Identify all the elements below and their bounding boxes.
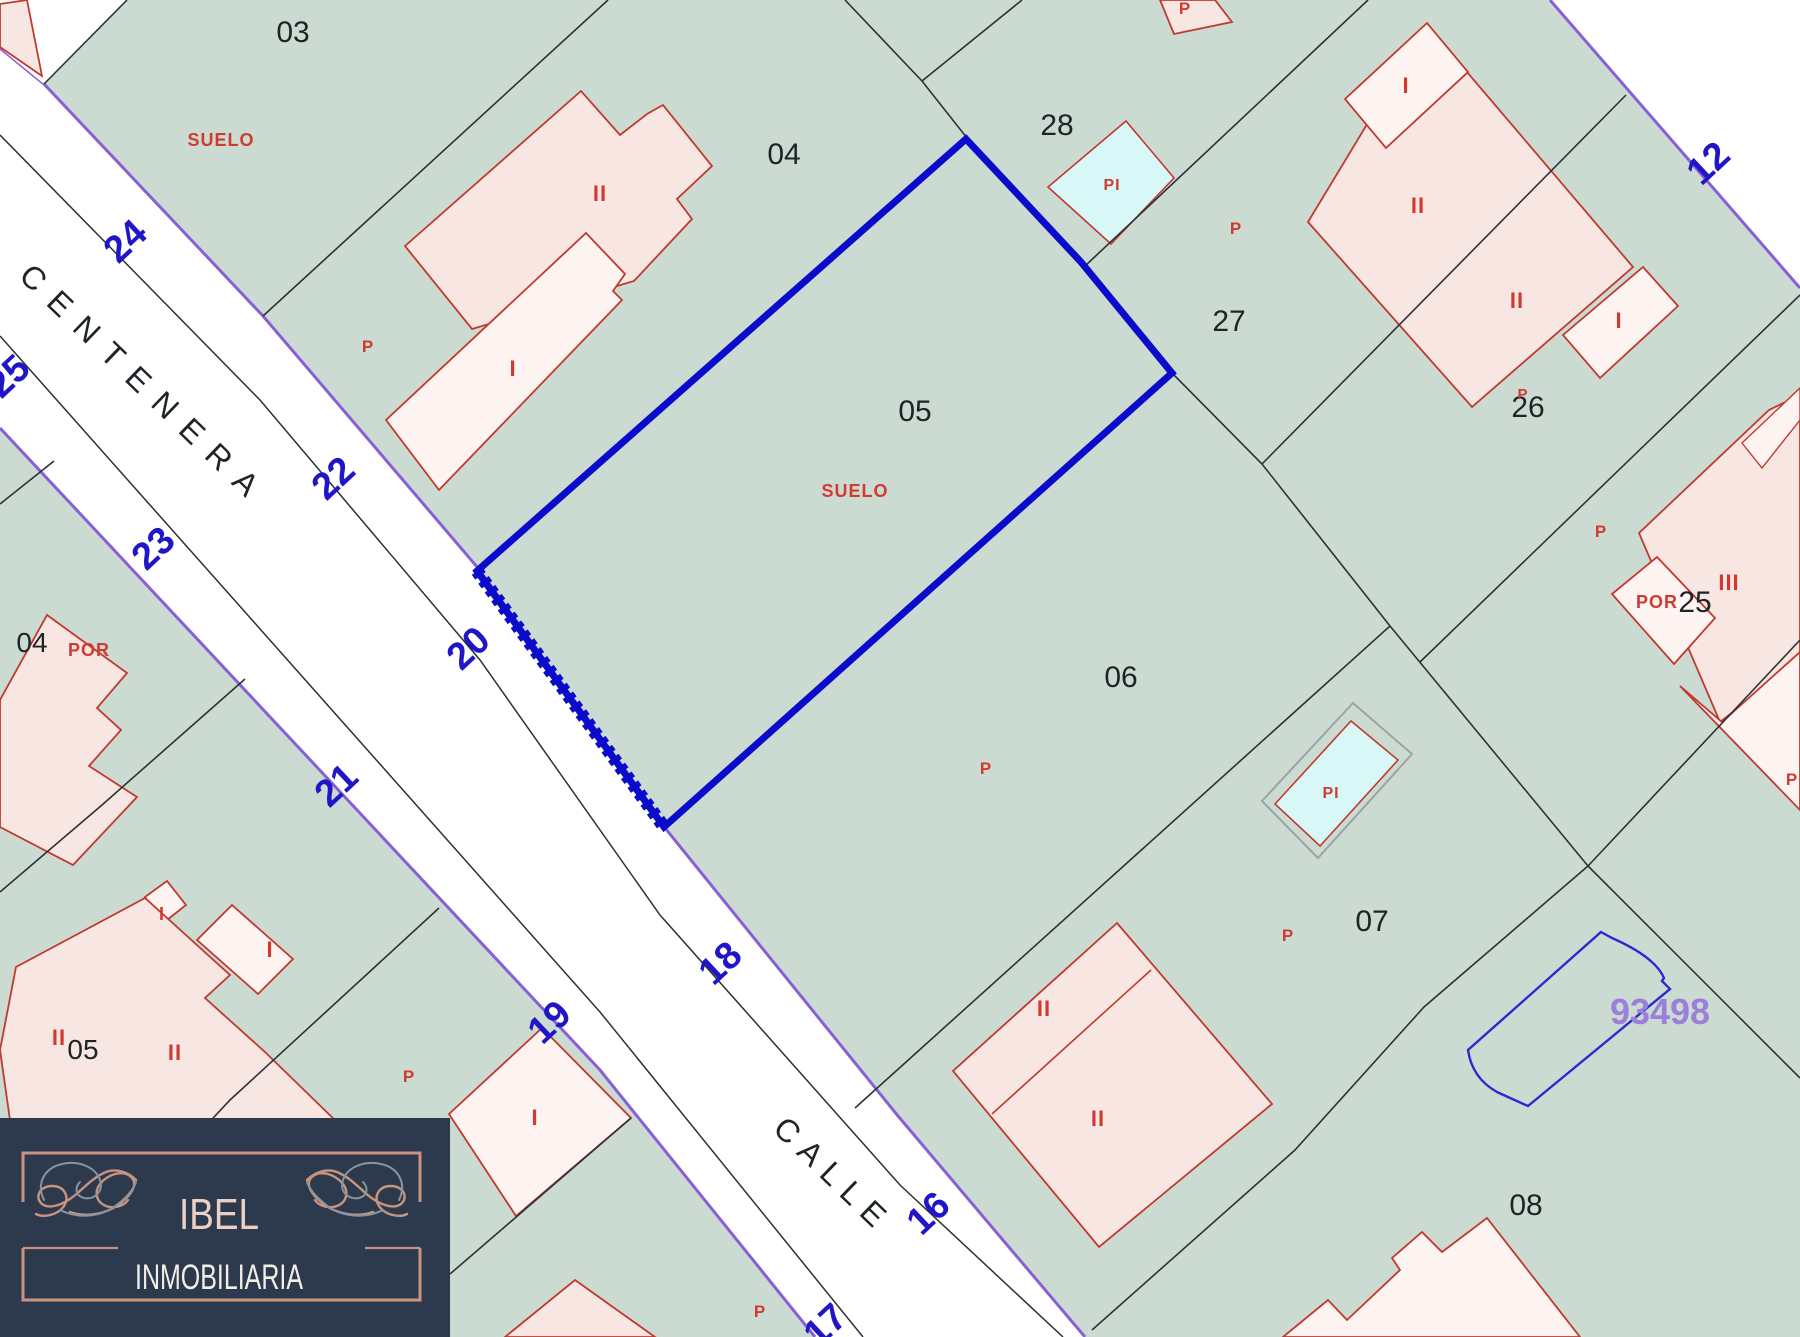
svg-text:P: P — [403, 1067, 415, 1086]
svg-text:IBEL: IBEL — [179, 1190, 259, 1239]
svg-text:I: I — [1402, 73, 1409, 98]
svg-text:04: 04 — [767, 138, 800, 171]
svg-text:93498: 93498 — [1610, 991, 1710, 1032]
svg-text:PI: PI — [1103, 177, 1120, 194]
svg-text:05: 05 — [67, 1034, 98, 1065]
svg-text:SUELO: SUELO — [821, 481, 888, 501]
svg-text:II: II — [1510, 288, 1524, 313]
svg-text:III: III — [1718, 570, 1739, 595]
svg-text:08: 08 — [1509, 1189, 1542, 1222]
svg-text:I: I — [531, 1105, 538, 1130]
svg-text:SUELO: SUELO — [187, 130, 254, 150]
svg-text:P: P — [980, 759, 992, 778]
svg-text:II: II — [168, 1040, 182, 1065]
svg-text:INMOBILIARIA: INMOBILIARIA — [135, 1258, 303, 1297]
svg-text:P: P — [1179, 0, 1191, 18]
svg-text:II: II — [1411, 193, 1425, 218]
svg-text:II: II — [52, 1025, 66, 1050]
svg-text:POR: POR — [1636, 592, 1678, 612]
svg-text:I: I — [509, 356, 516, 381]
svg-text:27: 27 — [1212, 305, 1245, 338]
svg-text:I: I — [1615, 308, 1622, 333]
svg-text:P: P — [1517, 386, 1528, 403]
svg-text:03: 03 — [276, 16, 309, 49]
svg-text:PI: PI — [1322, 785, 1339, 802]
svg-text:P: P — [1282, 926, 1294, 945]
svg-text:07: 07 — [1355, 905, 1388, 938]
svg-text:II: II — [593, 181, 607, 206]
svg-text:II: II — [1037, 996, 1051, 1021]
svg-text:P: P — [1786, 770, 1798, 789]
svg-text:I: I — [266, 937, 273, 962]
svg-text:P: P — [1595, 522, 1607, 541]
svg-text:28: 28 — [1040, 109, 1073, 142]
svg-text:POR: POR — [68, 640, 110, 660]
svg-text:P: P — [362, 337, 374, 356]
svg-text:II: II — [1091, 1106, 1105, 1131]
svg-text:P: P — [754, 1302, 766, 1321]
svg-text:04: 04 — [16, 627, 47, 658]
svg-text:25: 25 — [1678, 586, 1711, 619]
svg-text:P: P — [1230, 219, 1242, 238]
svg-text:05: 05 — [898, 395, 931, 428]
svg-text:06: 06 — [1104, 661, 1137, 694]
svg-text:I: I — [159, 904, 165, 924]
